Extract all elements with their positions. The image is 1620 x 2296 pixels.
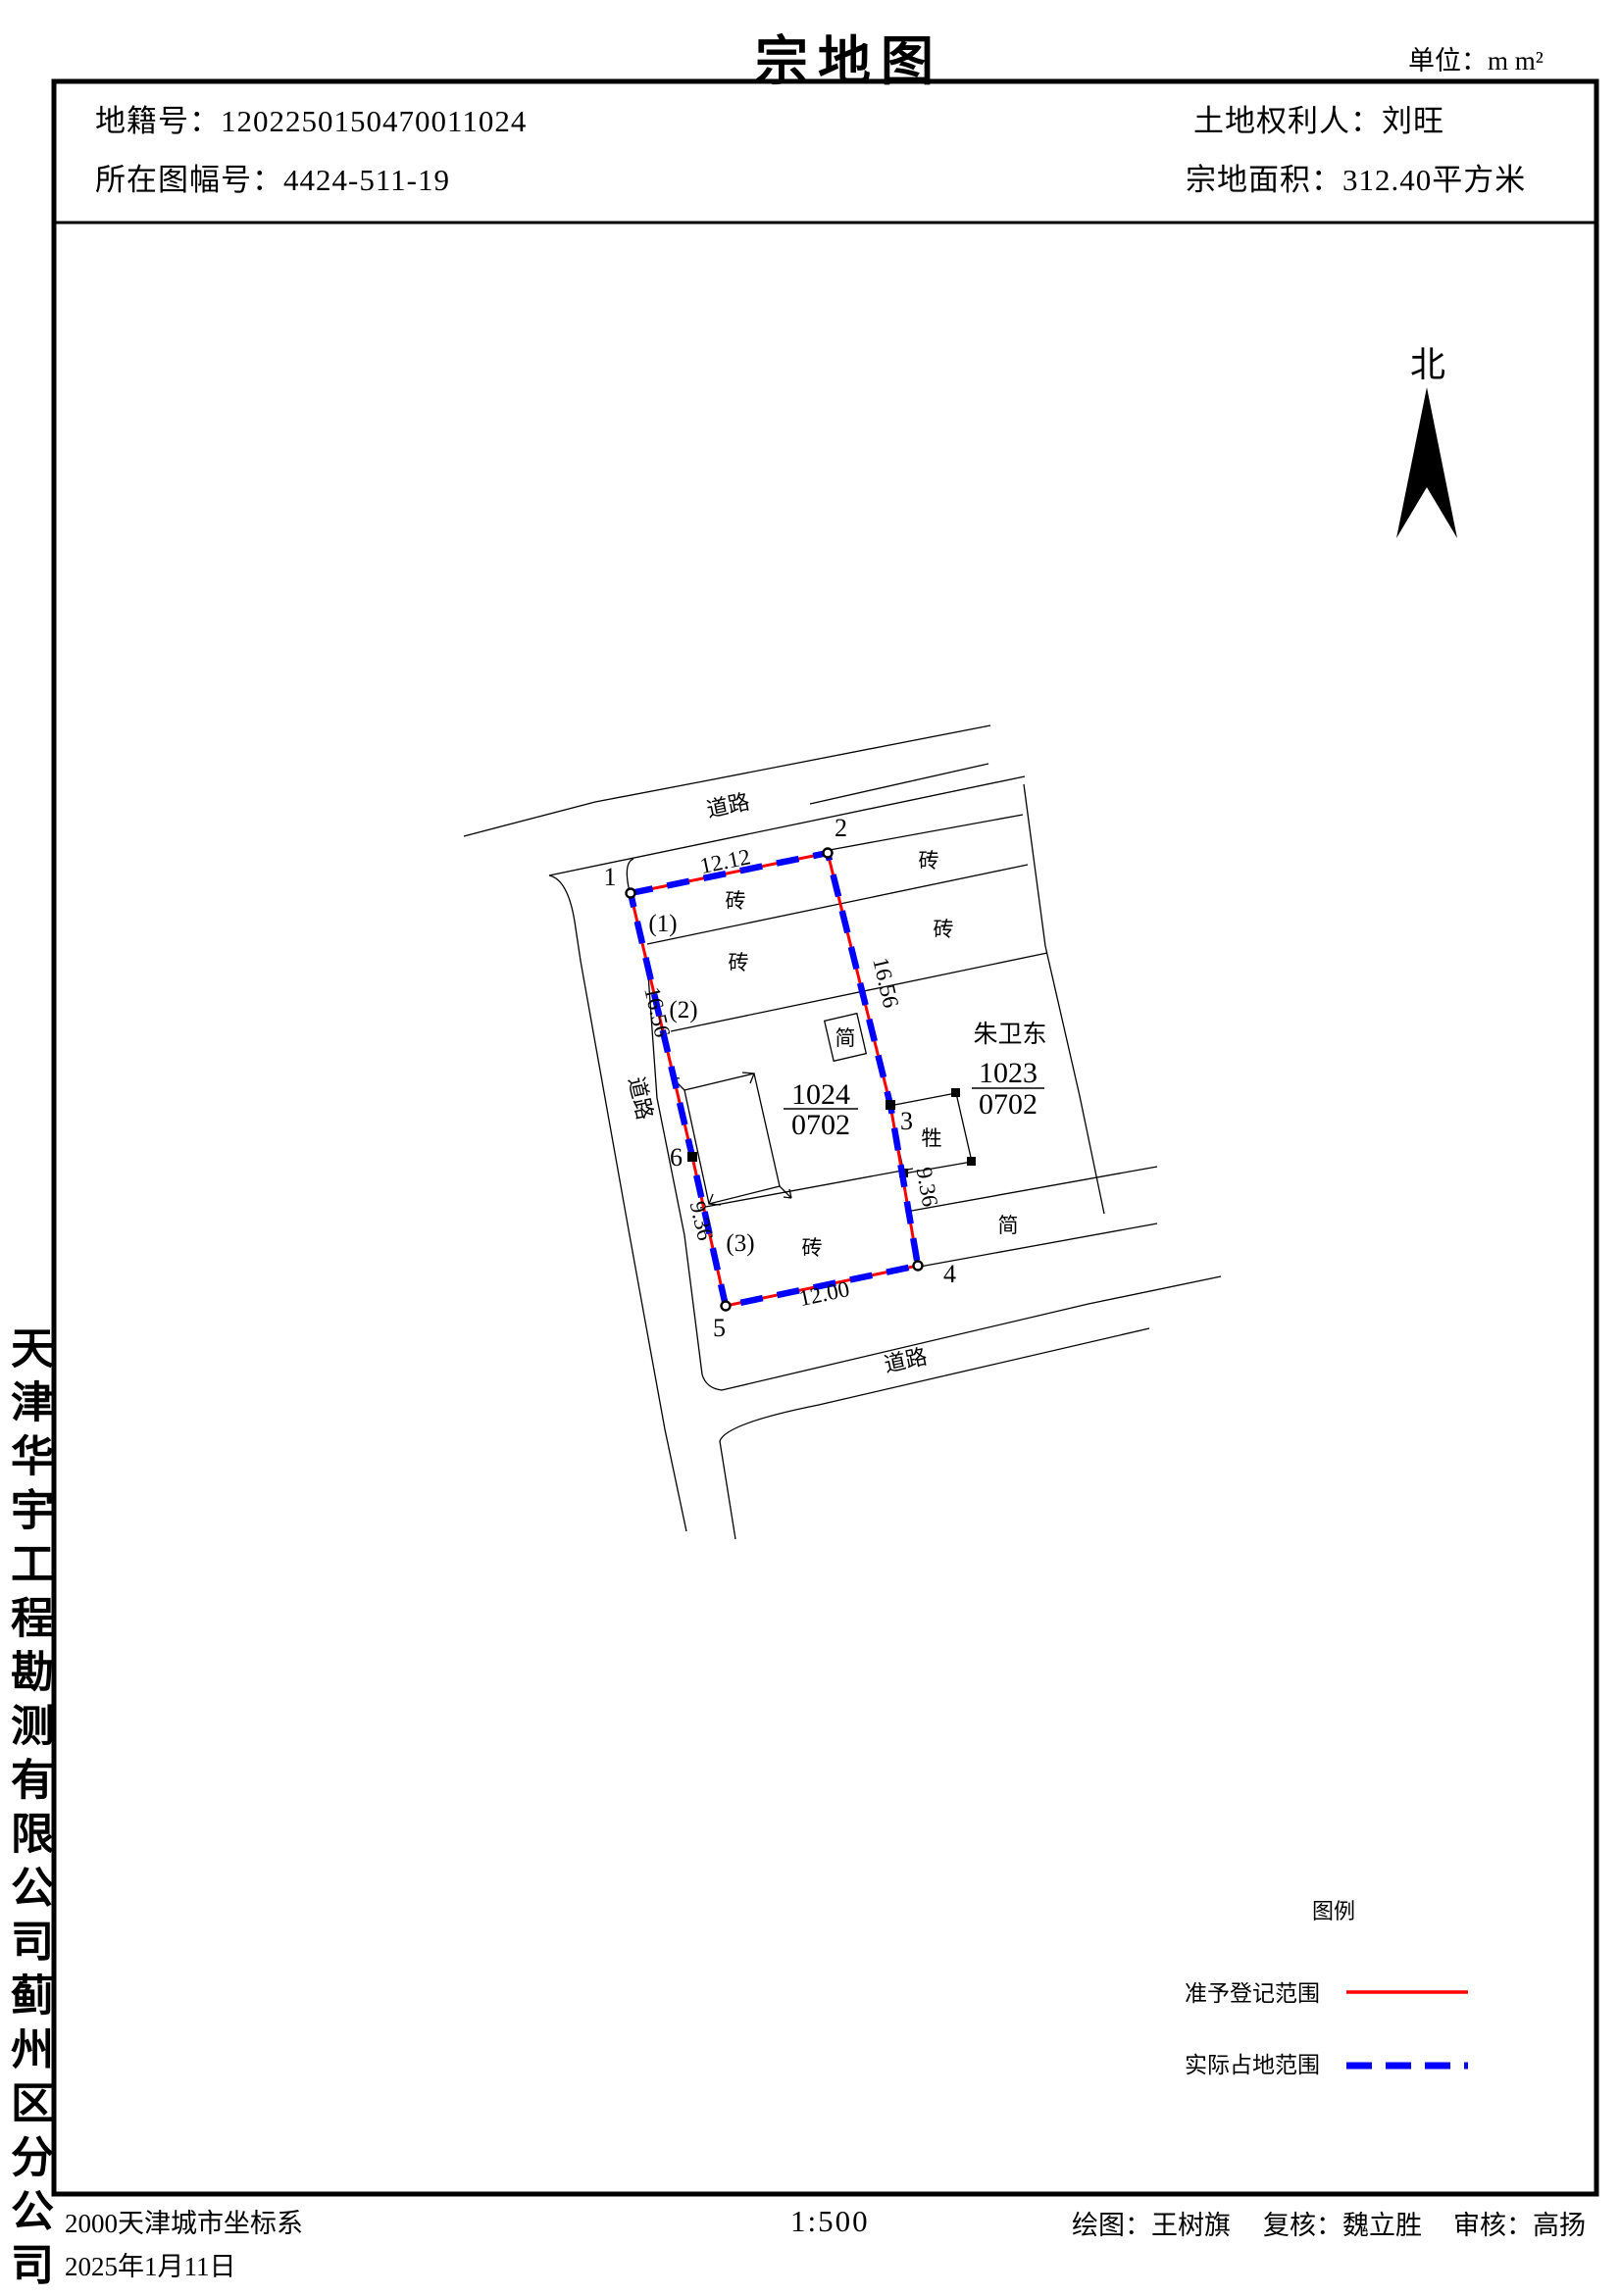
simple-strip-label: 简: [998, 1214, 1019, 1237]
dim-right-lower: 9.36: [912, 1166, 943, 1209]
point-label-6: 6: [670, 1143, 683, 1172]
legend: 图例 准予登记范围 实际占地范围: [1185, 1899, 1468, 2077]
dim-top: 12.12: [698, 844, 753, 878]
livestock-shed-label: 牲: [922, 1126, 942, 1150]
parcel-number: 1024: [791, 1078, 850, 1111]
map-canvas: 北 简 牲: [0, 0, 1620, 2292]
legend-approved-label: 准予登记范围: [1185, 1981, 1320, 2006]
point-label-5: 5: [713, 1314, 726, 1342]
dim-right: 16.56: [868, 955, 903, 1010]
north-label: 北: [1410, 345, 1445, 384]
subparcel-1: (1): [648, 911, 677, 937]
simple-structure-label: 简: [835, 1026, 856, 1050]
dim-bottom: 12.00: [797, 1276, 852, 1311]
neighbor-number: 1023: [979, 1057, 1038, 1089]
legend-actual-label: 实际占地范围: [1185, 2053, 1320, 2077]
road-label-left: 道路: [624, 1074, 657, 1123]
material-labels: 砖 砖 砖 砖 砖 简: [726, 849, 1019, 1260]
road-label-top: 道路: [704, 789, 751, 823]
point-label-4: 4: [943, 1260, 956, 1288]
brick-label-5: 砖: [934, 918, 954, 941]
point-label-1: 1: [604, 863, 617, 891]
subparcel-3: (3): [726, 1230, 754, 1257]
subparcel-2: (2): [669, 997, 697, 1023]
parcel-land-class: 0702: [791, 1109, 850, 1141]
simple-structure-box: 简: [825, 1014, 867, 1062]
brick-label-1: 砖: [726, 889, 746, 913]
point-label-3: 3: [900, 1107, 913, 1135]
neighbor-land-class: 0702: [979, 1088, 1038, 1121]
parcel-map-sheet: { "page": { "title": "宗地图", "unit_note":…: [0, 0, 1620, 2292]
brick-label-2: 砖: [729, 951, 749, 974]
road-labels: 道路 道路 道路: [624, 789, 929, 1377]
parcel-number-fraction: 1024 0702: [784, 1078, 858, 1141]
brick-label-3: 砖: [802, 1236, 823, 1260]
neighbor-parcel-annotation: 朱卫东 1023 0702: [972, 1021, 1047, 1121]
boundary-point-numbers: 1 2 3 4 5 6: [604, 814, 957, 1342]
neighbor-owner: 朱卫东: [973, 1021, 1046, 1048]
north-indicator: 北: [1396, 345, 1457, 538]
north-arrow-icon: [1396, 387, 1457, 538]
brick-label-4: 砖: [919, 849, 939, 873]
road-label-bottom: 道路: [882, 1344, 929, 1377]
point-label-2: 2: [835, 814, 847, 842]
legend-title: 图例: [1312, 1899, 1355, 1923]
